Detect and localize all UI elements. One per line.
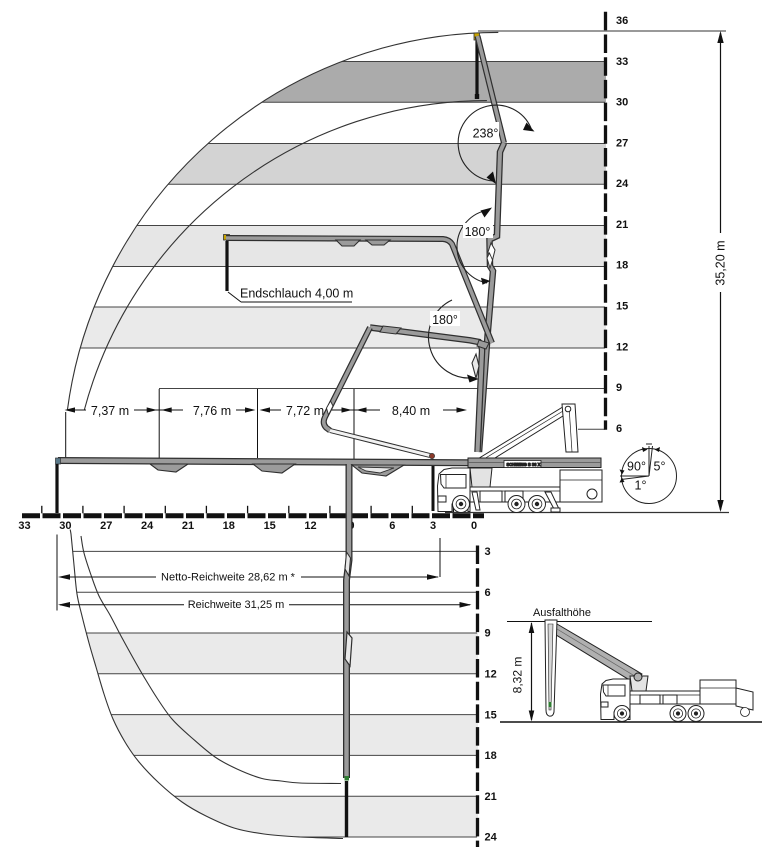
svg-text:Endschlauch 4,00 m: Endschlauch 4,00 m <box>240 287 353 301</box>
svg-text:3: 3 <box>485 546 491 558</box>
svg-text:9: 9 <box>485 628 491 640</box>
svg-text:238°: 238° <box>473 127 499 141</box>
svg-text:24: 24 <box>485 832 498 844</box>
svg-text:24: 24 <box>616 178 629 190</box>
svg-text:6: 6 <box>485 587 491 599</box>
svg-text:6: 6 <box>616 423 622 435</box>
svg-text:27: 27 <box>100 520 112 532</box>
svg-text:15: 15 <box>616 301 628 313</box>
svg-text:12: 12 <box>485 669 497 681</box>
svg-text:Ausfalthöhe: Ausfalthöhe <box>533 607 591 619</box>
svg-text:1°: 1° <box>635 479 647 493</box>
svg-text:8,32 m: 8,32 m <box>511 657 525 694</box>
svg-text:7,76 m: 7,76 m <box>193 404 231 418</box>
svg-text:35,20 m: 35,20 m <box>714 240 728 285</box>
svg-text:Reichweite 31,25 m: Reichweite 31,25 m <box>188 599 285 611</box>
svg-text:21: 21 <box>182 520 194 532</box>
svg-text:7,37 m: 7,37 m <box>91 404 129 418</box>
svg-text:24: 24 <box>141 520 154 532</box>
svg-text:12: 12 <box>304 520 316 532</box>
svg-text:21: 21 <box>616 219 628 231</box>
svg-text:30: 30 <box>616 97 628 109</box>
svg-text:27: 27 <box>616 137 628 149</box>
svg-text:180°: 180° <box>465 225 491 239</box>
svg-text:5°: 5° <box>654 460 666 474</box>
svg-text:0: 0 <box>471 520 477 532</box>
svg-text:33: 33 <box>616 56 628 68</box>
svg-text:30: 30 <box>59 520 71 532</box>
svg-text:Netto-Reichweite 28,62 m *: Netto-Reichweite 28,62 m * <box>161 571 296 583</box>
svg-text:3: 3 <box>430 520 436 532</box>
svg-text:SCHWING S 36 X: SCHWING S 36 X <box>507 462 541 467</box>
svg-text:9: 9 <box>616 382 622 394</box>
svg-text:18: 18 <box>485 750 497 762</box>
svg-text:12: 12 <box>616 341 628 353</box>
svg-text:15: 15 <box>264 520 276 532</box>
svg-text:21: 21 <box>485 791 497 803</box>
svg-text:18: 18 <box>223 520 235 532</box>
svg-text:36: 36 <box>616 15 628 27</box>
svg-text:15: 15 <box>485 709 497 721</box>
svg-text:7,72 m: 7,72 m <box>286 404 324 418</box>
svg-text:8,40 m: 8,40 m <box>392 404 430 418</box>
svg-text:33: 33 <box>18 520 30 532</box>
svg-text:18: 18 <box>616 260 628 272</box>
svg-text:180°: 180° <box>432 313 458 327</box>
svg-text:6: 6 <box>389 520 395 532</box>
svg-text:90°: 90° <box>627 459 646 473</box>
